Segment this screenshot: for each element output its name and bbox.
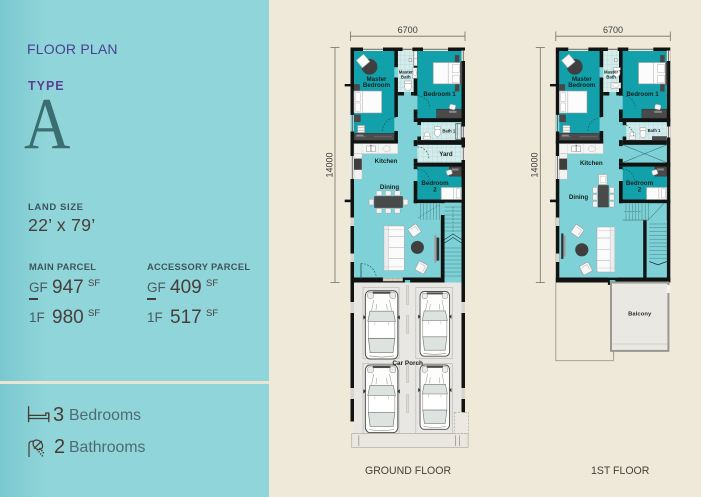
svg-text:6700: 6700 (398, 25, 418, 35)
svg-text:Kitchen: Kitchen (580, 160, 603, 167)
svg-text:Yard: Yard (439, 151, 453, 158)
svg-text:Kitchen: Kitchen (375, 158, 398, 165)
svg-text:Bath 1: Bath 1 (442, 128, 455, 133)
svg-text:Dining: Dining (569, 194, 588, 201)
svg-text:Bedroom 1: Bedroom 1 (423, 91, 456, 98)
svg-text:Car Porch: Car Porch (392, 360, 423, 367)
svg-text:Bedroom: Bedroom (363, 82, 391, 89)
svg-text:Balcony: Balcony (628, 312, 652, 318)
svg-text:Bath 1: Bath 1 (648, 128, 661, 133)
svg-text:14000: 14000 (530, 152, 540, 177)
svg-text:14000: 14000 (325, 152, 334, 177)
svg-text:Dining: Dining (380, 184, 399, 191)
svg-text:2: 2 (433, 186, 437, 193)
svg-text:Bath: Bath (401, 75, 411, 80)
svg-text:Bath: Bath (606, 75, 616, 80)
svg-text:6700: 6700 (603, 25, 623, 35)
svg-text:Bedroom: Bedroom (568, 82, 596, 89)
svg-text:2: 2 (638, 186, 642, 193)
svg-text:Bedroom 1: Bedroom 1 (626, 91, 659, 98)
